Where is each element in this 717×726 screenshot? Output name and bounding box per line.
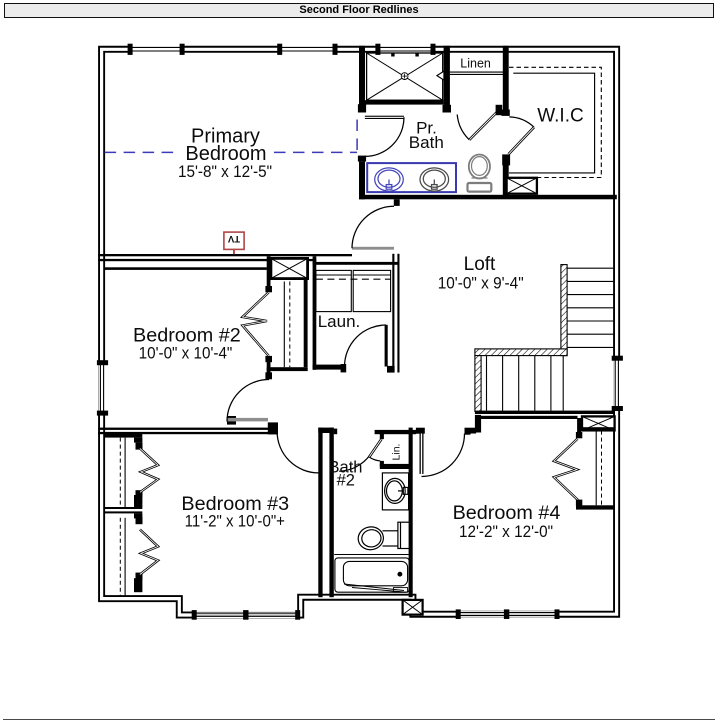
svg-text:15'-8" x 12'-5": 15'-8" x 12'-5" bbox=[178, 163, 272, 181]
svg-text:W.I.C: W.I.C bbox=[537, 106, 583, 127]
svg-text:Bedroom #4: Bedroom #4 bbox=[453, 502, 561, 524]
svg-text:Linen: Linen bbox=[460, 57, 491, 71]
svg-text:TV: TV bbox=[227, 233, 240, 244]
svg-text:Bedroom #3: Bedroom #3 bbox=[181, 493, 289, 515]
svg-text:#2: #2 bbox=[337, 472, 355, 490]
svg-text:12'-2" x 12'-0": 12'-2" x 12'-0" bbox=[459, 523, 553, 541]
svg-text:Bedroom #2: Bedroom #2 bbox=[133, 325, 241, 347]
svg-text:Loft: Loft bbox=[464, 254, 496, 275]
svg-text:Lin.: Lin. bbox=[391, 444, 403, 461]
svg-text:10'-0" x 9'-4": 10'-0" x 9'-4" bbox=[438, 274, 524, 292]
svg-text:Bath: Bath bbox=[409, 133, 444, 152]
svg-text:Bedroom: Bedroom bbox=[185, 143, 266, 165]
svg-text:Laun.: Laun. bbox=[318, 312, 361, 331]
svg-text:10'-0" x 10'-4": 10'-0" x 10'-4" bbox=[139, 344, 233, 362]
svg-text:11'-2" x 10'-0"+: 11'-2" x 10'-0"+ bbox=[185, 513, 285, 531]
